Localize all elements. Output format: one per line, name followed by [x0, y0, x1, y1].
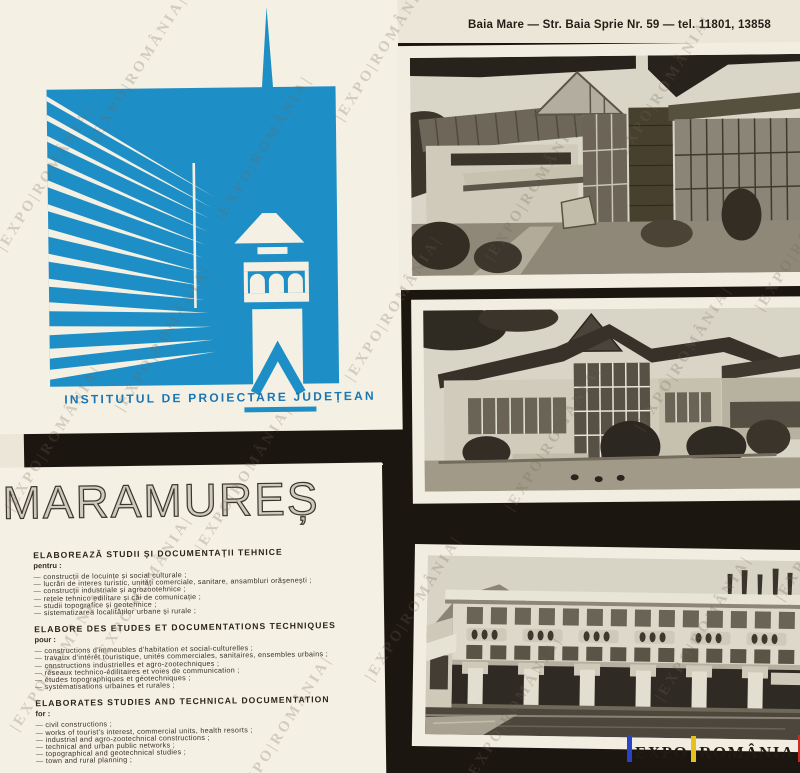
photo-1-image [410, 54, 800, 276]
services-section-fr: ELABORE DES ETUDES ET DOCUMENTATIONS TEC… [34, 621, 380, 691]
tower-rays-logo-icon [0, 0, 403, 435]
photo-3-image [425, 555, 800, 740]
flag-bar-blue [627, 735, 632, 762]
expo-romania-badge: EXPO ROMÂNIA [627, 735, 800, 762]
scanned-brochure-page: INSTITUTUL DE PROIECTARE JUDEȚEAN MARAMU… [0, 0, 800, 773]
logo-card: INSTITUTUL DE PROIECTARE JUDEȚEAN [0, 0, 403, 435]
badge-romania-label: ROMÂNIA [699, 743, 795, 762]
address-line: Baia Mare — Str. Baia Sprie Nr. 59 — tel… [468, 19, 771, 31]
institute-underline [244, 407, 316, 412]
photo-2-image [423, 307, 800, 491]
services-list: ELABOREAZĂ STUDII ȘI DOCUMENTAȚII TEHNIC… [33, 546, 381, 773]
flag-bar-yellow [691, 736, 696, 762]
services-section-ro: ELABOREAZĂ STUDII ȘI DOCUMENTAȚII TEHNIC… [33, 546, 379, 616]
photo-1-frame [397, 42, 800, 290]
badge-expo-label: EXPO [635, 743, 688, 762]
photo-3-frame [412, 544, 800, 752]
services-section-en: ELABORATES STUDIES AND TECHNICAL DOCUMEN… [35, 695, 381, 765]
photo-2-frame [411, 296, 800, 503]
text-card: MARAMUREȘ ELABOREAZĂ STUDII ȘI DOCUMENTA… [0, 462, 386, 773]
county-title: MARAMUREȘ [2, 471, 320, 529]
